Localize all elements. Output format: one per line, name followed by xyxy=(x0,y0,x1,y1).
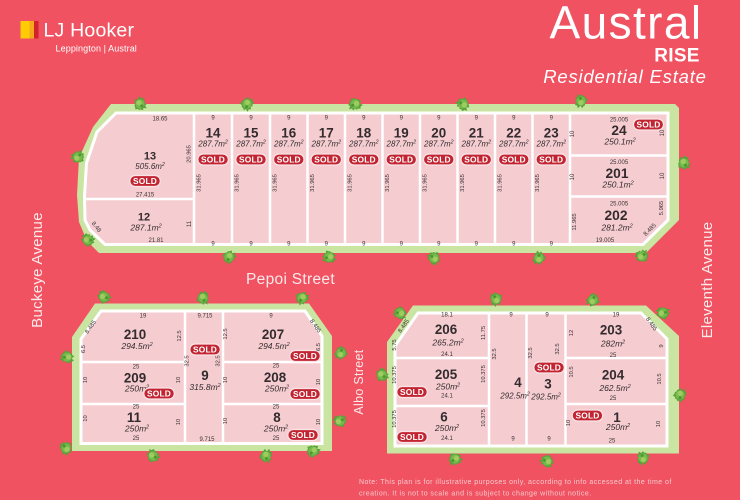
svg-text:10.5: 10.5 xyxy=(569,366,575,377)
svg-text:287.7m2: 287.7m2 xyxy=(498,140,529,149)
svg-text:205: 205 xyxy=(435,367,458,382)
svg-text:9.715: 9.715 xyxy=(197,314,213,320)
svg-text:4: 4 xyxy=(514,375,522,390)
svg-text:SOLD: SOLD xyxy=(502,154,526,164)
svg-text:10: 10 xyxy=(83,377,89,383)
svg-text:LJ Hooker: LJ Hooker xyxy=(44,20,135,42)
svg-text:10: 10 xyxy=(223,418,229,424)
svg-text:294.5m2: 294.5m2 xyxy=(120,341,152,351)
svg-text:24.1: 24.1 xyxy=(441,352,453,358)
svg-text:10: 10 xyxy=(570,130,576,137)
svg-text:5.965: 5.965 xyxy=(659,201,665,216)
svg-text:creation. It is not to scale a: creation. It is not to scale and is subj… xyxy=(359,491,592,498)
svg-text:13: 13 xyxy=(144,151,156,163)
svg-text:SOLD: SOLD xyxy=(193,344,217,354)
svg-text:207: 207 xyxy=(262,327,284,342)
svg-text:20: 20 xyxy=(431,126,446,141)
svg-text:10: 10 xyxy=(176,419,182,425)
svg-text:31.965: 31.965 xyxy=(498,174,504,192)
svg-text:SOLD: SOLD xyxy=(293,389,317,399)
svg-text:25: 25 xyxy=(273,436,280,442)
svg-text:31.965: 31.965 xyxy=(197,174,203,192)
svg-text:19: 19 xyxy=(394,126,409,141)
svg-text:6.5: 6.5 xyxy=(81,345,87,353)
svg-text:27.415: 27.415 xyxy=(136,193,155,199)
svg-text:250m2: 250m2 xyxy=(605,422,630,432)
svg-text:206: 206 xyxy=(435,322,457,337)
svg-text:250.1m2: 250.1m2 xyxy=(603,137,635,147)
svg-text:32.5: 32.5 xyxy=(528,347,534,358)
svg-text:Buckeye Avenue: Buckeye Avenue xyxy=(29,212,46,328)
svg-text:3: 3 xyxy=(544,377,551,392)
svg-text:25: 25 xyxy=(133,436,140,442)
svg-text:250m2: 250m2 xyxy=(124,424,149,434)
svg-text:SOLD: SOLD xyxy=(291,430,315,440)
svg-text:25: 25 xyxy=(273,364,280,370)
svg-text:Albo Street: Albo Street xyxy=(352,349,366,414)
svg-text:10.5: 10.5 xyxy=(657,373,663,384)
svg-text:12.5: 12.5 xyxy=(223,328,229,339)
svg-text:292.5m2: 292.5m2 xyxy=(530,393,561,402)
svg-text:287.7m2: 287.7m2 xyxy=(536,140,567,149)
svg-text:Residential Estate: Residential Estate xyxy=(543,66,707,87)
svg-text:21.81: 21.81 xyxy=(148,238,164,244)
svg-text:32.5: 32.5 xyxy=(492,348,498,359)
svg-text:25: 25 xyxy=(610,396,617,402)
svg-text:31.965: 31.965 xyxy=(273,174,279,192)
svg-text:22: 22 xyxy=(506,126,521,141)
svg-text:25.005: 25.005 xyxy=(610,202,629,208)
svg-text:292.5m2: 292.5m2 xyxy=(499,392,530,401)
svg-text:17: 17 xyxy=(319,126,334,141)
svg-text:SOLD: SOLD xyxy=(400,387,424,397)
svg-text:24.1: 24.1 xyxy=(441,436,453,442)
svg-text:19.005: 19.005 xyxy=(596,238,615,244)
svg-text:SOLD: SOLD xyxy=(293,351,317,361)
svg-text:31.965: 31.965 xyxy=(385,174,391,192)
svg-text:SOLD: SOLD xyxy=(352,154,376,164)
svg-text:SOLD: SOLD xyxy=(201,154,225,164)
svg-text:10: 10 xyxy=(656,421,662,427)
svg-text:287.7m2: 287.7m2 xyxy=(423,140,454,149)
svg-text:31.965: 31.965 xyxy=(460,174,466,192)
svg-text:9: 9 xyxy=(659,344,665,347)
svg-text:287.7m2: 287.7m2 xyxy=(386,140,417,149)
svg-text:287.7m2: 287.7m2 xyxy=(348,140,379,149)
svg-text:9: 9 xyxy=(201,368,208,383)
svg-text:250m2: 250m2 xyxy=(435,382,460,392)
svg-text:RISE: RISE xyxy=(654,46,700,67)
svg-text:Note: This plan is for illustr: Note: This plan is for illustrative purp… xyxy=(359,479,672,486)
svg-text:250.1m2: 250.1m2 xyxy=(601,180,633,190)
svg-text:204: 204 xyxy=(602,368,625,383)
svg-text:265.2m2: 265.2m2 xyxy=(431,338,463,348)
svg-text:18: 18 xyxy=(356,126,371,141)
svg-text:10: 10 xyxy=(83,415,89,421)
svg-text:287.1m2: 287.1m2 xyxy=(129,223,161,233)
svg-text:19: 19 xyxy=(613,313,620,319)
svg-text:11.965: 11.965 xyxy=(572,213,578,230)
svg-text:18.1: 18.1 xyxy=(441,313,453,319)
svg-text:14: 14 xyxy=(206,126,221,141)
svg-text:287.7m2: 287.7m2 xyxy=(273,140,304,149)
svg-text:18.65: 18.65 xyxy=(152,117,168,123)
svg-text:32.5: 32.5 xyxy=(185,355,191,366)
svg-text:287.7m2: 287.7m2 xyxy=(197,140,228,149)
svg-text:31.965: 31.965 xyxy=(423,174,429,192)
svg-text:SOLD: SOLD xyxy=(277,154,301,164)
svg-text:10.375: 10.375 xyxy=(481,409,487,427)
svg-text:505.6m2: 505.6m2 xyxy=(135,162,165,171)
svg-text:25: 25 xyxy=(609,439,616,445)
svg-text:SOLD: SOLD xyxy=(314,154,338,164)
svg-text:12.5: 12.5 xyxy=(177,330,183,341)
svg-text:10: 10 xyxy=(570,173,576,180)
svg-text:287.7m2: 287.7m2 xyxy=(235,140,266,149)
svg-text:Austral: Austral xyxy=(550,0,703,49)
svg-text:10: 10 xyxy=(316,379,322,385)
svg-text:21: 21 xyxy=(469,126,484,141)
svg-text:20.965: 20.965 xyxy=(187,145,193,163)
svg-text:24.1: 24.1 xyxy=(441,394,453,400)
svg-text:Pepoi Street: Pepoi Street xyxy=(246,271,335,288)
svg-text:287.7m2: 287.7m2 xyxy=(461,140,492,149)
svg-text:25: 25 xyxy=(610,353,617,359)
svg-text:262.5m2: 262.5m2 xyxy=(598,383,630,393)
svg-text:294.5m2: 294.5m2 xyxy=(257,341,289,351)
svg-text:10.375: 10.375 xyxy=(392,410,398,428)
svg-text:6.5: 6.5 xyxy=(316,343,322,351)
svg-text:16: 16 xyxy=(281,126,296,141)
svg-text:SOLD: SOLD xyxy=(427,154,451,164)
svg-text:10.375: 10.375 xyxy=(392,366,398,384)
svg-text:282m2: 282m2 xyxy=(600,339,625,349)
svg-text:23: 23 xyxy=(544,126,559,141)
svg-text:287.7m2: 287.7m2 xyxy=(311,140,342,149)
svg-text:9.715: 9.715 xyxy=(199,437,215,443)
svg-text:SOLD: SOLD xyxy=(389,154,413,164)
svg-text:SOLD: SOLD xyxy=(575,410,599,420)
svg-text:Eleventh Avenue: Eleventh Avenue xyxy=(699,222,716,339)
svg-text:31.965: 31.965 xyxy=(235,174,241,192)
svg-text:SOLD: SOLD xyxy=(636,119,660,129)
svg-text:SOLD: SOLD xyxy=(537,362,561,372)
svg-text:31.965: 31.965 xyxy=(348,174,354,192)
svg-text:10: 10 xyxy=(223,377,229,383)
svg-text:19: 19 xyxy=(140,314,147,320)
svg-text:12: 12 xyxy=(569,330,575,336)
svg-text:15: 15 xyxy=(244,126,259,141)
svg-text:315.8m2: 315.8m2 xyxy=(189,382,220,392)
svg-text:10: 10 xyxy=(316,419,322,425)
svg-text:250m2: 250m2 xyxy=(263,424,288,434)
svg-text:SOLD: SOLD xyxy=(133,176,157,186)
svg-text:10: 10 xyxy=(660,129,666,136)
svg-text:SOLD: SOLD xyxy=(464,154,488,164)
svg-text:SOLD: SOLD xyxy=(539,154,563,164)
svg-text:5.75: 5.75 xyxy=(392,339,398,350)
svg-text:10: 10 xyxy=(566,420,572,426)
svg-text:31.965: 31.965 xyxy=(310,174,316,192)
svg-text:10: 10 xyxy=(660,172,666,179)
svg-text:202: 202 xyxy=(604,208,627,223)
svg-text:11: 11 xyxy=(187,220,193,227)
svg-text:10: 10 xyxy=(176,377,182,383)
svg-text:32.5: 32.5 xyxy=(555,343,561,354)
svg-text:281.2m2: 281.2m2 xyxy=(600,223,632,233)
svg-text:210: 210 xyxy=(124,327,146,342)
svg-text:250m2: 250m2 xyxy=(434,423,459,433)
svg-text:11.75: 11.75 xyxy=(481,326,487,340)
svg-text:250m2: 250m2 xyxy=(264,384,289,394)
svg-text:31.965: 31.965 xyxy=(535,174,541,192)
svg-text:203: 203 xyxy=(600,323,622,338)
svg-text:SOLD: SOLD xyxy=(147,388,171,398)
svg-text:SOLD: SOLD xyxy=(239,154,263,164)
svg-text:Leppington | Austral: Leppington | Austral xyxy=(56,44,137,54)
svg-text:32.5: 32.5 xyxy=(216,355,222,366)
svg-text:SOLD: SOLD xyxy=(400,432,424,442)
svg-text:10.375: 10.375 xyxy=(481,365,487,383)
